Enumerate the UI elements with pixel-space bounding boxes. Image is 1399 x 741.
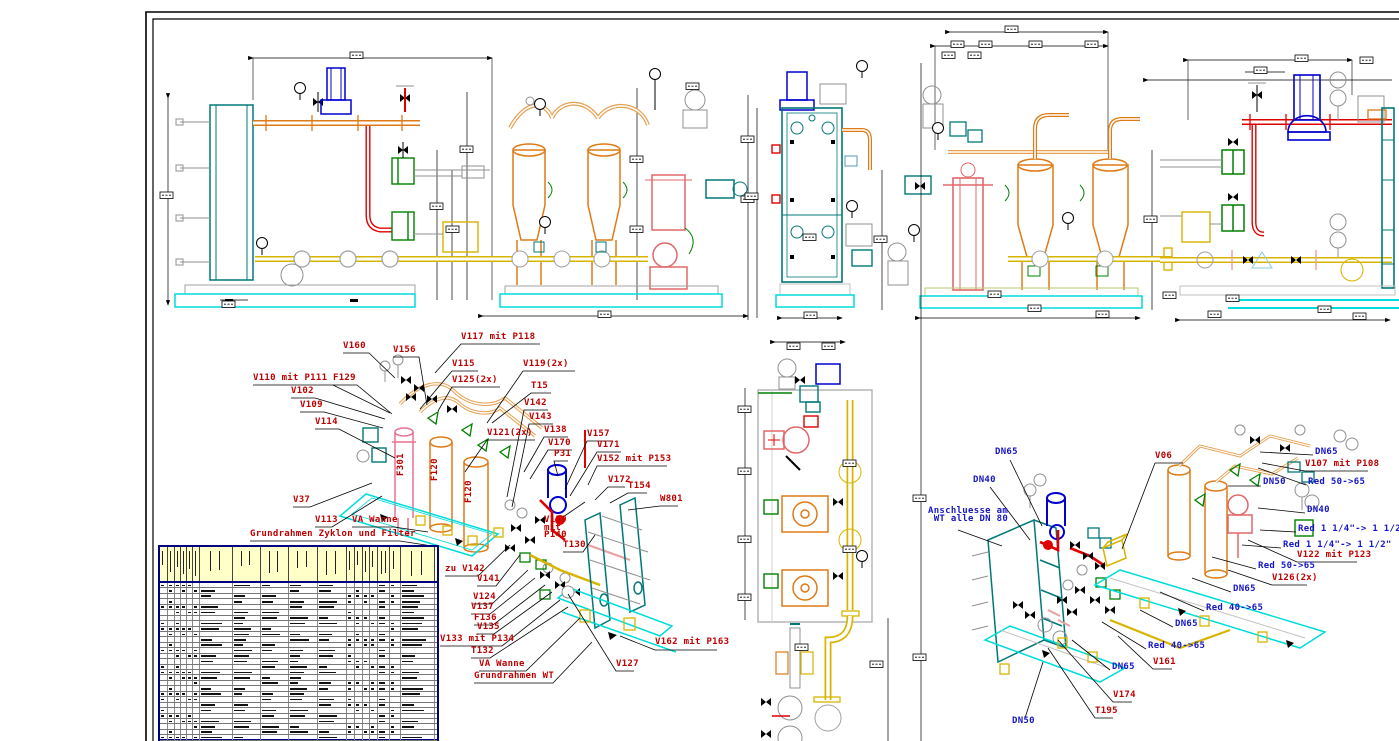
- table-cell: [289, 703, 318, 707]
- table-cell: [370, 643, 378, 647]
- table-cell: [347, 583, 355, 587]
- table-cell: [378, 637, 390, 641]
- table-cell: [390, 616, 401, 620]
- table-cell: [401, 610, 435, 614]
- table-cell: [261, 632, 289, 636]
- table-cell: [233, 599, 261, 603]
- table-cell: [355, 714, 363, 718]
- table-cell: [347, 665, 355, 669]
- table-cell: [200, 697, 233, 701]
- table-cell: [160, 588, 168, 592]
- table-cell: [261, 594, 289, 598]
- table-cell: [160, 670, 168, 674]
- annotation-label: F129: [333, 375, 356, 383]
- table-cell: [261, 605, 289, 609]
- table-cell: [168, 724, 175, 728]
- table-cell: [168, 599, 175, 603]
- table-cell: [233, 686, 261, 690]
- table-cell: [200, 730, 233, 734]
- table-cell: [200, 719, 233, 723]
- table-cell: [378, 681, 390, 685]
- table-cell: [355, 599, 363, 603]
- table-cell: [318, 675, 347, 679]
- table-cell: [370, 735, 378, 739]
- annotation-label: T154: [628, 483, 651, 491]
- table-cell: [378, 599, 390, 603]
- table-cell: [363, 730, 370, 734]
- table-cell: [370, 686, 378, 690]
- table-cell: [318, 665, 347, 669]
- table-cell: [390, 659, 401, 663]
- table-cell: [347, 681, 355, 685]
- table-cell: [289, 594, 318, 598]
- table-cell: [168, 681, 175, 685]
- table-cell: [378, 583, 390, 587]
- table-cell: [200, 703, 233, 707]
- table-cell: [401, 632, 435, 636]
- table-cell: [289, 610, 318, 614]
- table-cell: [193, 599, 200, 603]
- table-cell: [318, 703, 347, 707]
- table-cell: [363, 637, 370, 641]
- table-cell: [168, 637, 175, 641]
- table-cell: [401, 719, 435, 723]
- table-cell: [363, 654, 370, 658]
- annotation-label: V113: [315, 517, 338, 525]
- table-cell: [200, 583, 233, 587]
- table-cell: [401, 665, 435, 669]
- table-cell: [378, 654, 390, 658]
- table-cell: [401, 659, 435, 663]
- annotation-label: V121(2x): [487, 430, 533, 438]
- table-cell: [370, 654, 378, 658]
- table-cell: [193, 714, 200, 718]
- table-cell: [318, 719, 347, 723]
- table-cell: [355, 719, 363, 723]
- leader-line: [1260, 452, 1313, 455]
- table-cell: [355, 692, 363, 696]
- table-cell: [168, 632, 175, 636]
- table-cell: [370, 708, 378, 712]
- table-cell: [289, 588, 318, 592]
- table-cell: [193, 665, 200, 669]
- table-cell: [261, 599, 289, 603]
- table-cell: [401, 616, 435, 620]
- table-cell: [390, 610, 401, 614]
- annotation-label: V170: [548, 440, 571, 448]
- table-cell: [261, 708, 289, 712]
- table-cell: [363, 643, 370, 647]
- table-cell: [370, 637, 378, 641]
- table-cell: [390, 724, 401, 728]
- table-cell: [378, 714, 390, 718]
- table-cell: [200, 621, 233, 625]
- table-cell: [401, 594, 435, 598]
- table-column-header: [168, 547, 175, 581]
- table-cell: [168, 703, 175, 707]
- table-cell: [347, 703, 355, 707]
- table-cell: [160, 632, 168, 636]
- table-cell: [318, 632, 347, 636]
- table-cell: [370, 648, 378, 652]
- table-cell: [318, 648, 347, 652]
- elevation-view-2: [483, 69, 754, 321]
- table-cell: [363, 692, 370, 696]
- table-cell: [363, 681, 370, 685]
- table-cell: [370, 594, 378, 598]
- table-cell: [378, 730, 390, 734]
- table-cell: [390, 637, 401, 641]
- table-cell: [401, 643, 435, 647]
- table-cell: [193, 621, 200, 625]
- table-cell: [193, 686, 200, 690]
- table-cell: [289, 583, 318, 587]
- table-cell: [355, 675, 363, 679]
- annotation-label: V125(2x): [452, 377, 498, 385]
- table-cell: [347, 643, 355, 647]
- table-cell: [168, 670, 175, 674]
- table-cell: [160, 697, 168, 701]
- table-cell: [378, 627, 390, 631]
- table-cell: [401, 697, 435, 701]
- table-cell: [200, 643, 233, 647]
- table-cell: [168, 594, 175, 598]
- table-cell: [355, 616, 363, 620]
- table-cell: [160, 594, 168, 598]
- table-cell: [160, 665, 168, 669]
- table-cell: [261, 697, 289, 701]
- table-cell: [160, 675, 168, 679]
- annotation-label: DN50: [1263, 479, 1286, 487]
- table-cell: [200, 648, 233, 652]
- annotation-label: V126(2x): [1272, 575, 1318, 583]
- parts-list-header: [160, 547, 437, 583]
- table-cell: [168, 648, 175, 652]
- table-cell: [363, 605, 370, 609]
- table-cell: [233, 632, 261, 636]
- table-cell: [347, 627, 355, 631]
- table-cell: [193, 708, 200, 712]
- annotation-label: V142: [524, 400, 547, 408]
- table-cell: [160, 627, 168, 631]
- annotation-label: F120: [432, 458, 440, 481]
- table-cell: [233, 708, 261, 712]
- annotation-label: VA Wanne: [479, 661, 525, 669]
- table-cell: [168, 735, 175, 739]
- table-cell: [363, 697, 370, 701]
- table-cell: [233, 659, 261, 663]
- table-cell: [233, 703, 261, 707]
- table-cell: [370, 616, 378, 620]
- table-cell: [168, 665, 175, 669]
- table-cell: [318, 724, 347, 728]
- leader-line: [1072, 640, 1110, 670]
- table-cell: [390, 648, 401, 652]
- table-cell: [347, 654, 355, 658]
- table-cell: [200, 594, 233, 598]
- table-column-header: [347, 547, 355, 581]
- table-cell: [370, 659, 378, 663]
- table-cell: [378, 703, 390, 707]
- table-cell: [355, 686, 363, 690]
- table-cell: [318, 616, 347, 620]
- table-cell: [168, 621, 175, 625]
- table-cell: [193, 670, 200, 674]
- table-cell: [390, 681, 401, 685]
- table-cell: [160, 637, 168, 641]
- table-cell: [261, 588, 289, 592]
- table-cell: [289, 714, 318, 718]
- table-cell: [347, 588, 355, 592]
- table-cell: [233, 714, 261, 718]
- table-cell: [168, 610, 175, 614]
- annotation-label: zu V142: [445, 566, 485, 574]
- leader-line: [1212, 557, 1256, 569]
- table-cell: [289, 730, 318, 734]
- table-cell: [347, 621, 355, 625]
- table-cell: [193, 681, 200, 685]
- table-cell: [355, 659, 363, 663]
- leader-line: [1260, 530, 1296, 532]
- table-cell: [355, 594, 363, 598]
- table-cell: [363, 659, 370, 663]
- table-cell: [168, 583, 175, 587]
- table-cell: [160, 654, 168, 658]
- parts-list-table: [158, 545, 439, 741]
- table-column-header: [370, 547, 378, 581]
- table-cell: [401, 654, 435, 658]
- table-cell: [355, 670, 363, 674]
- leader-line: [1025, 662, 1043, 718]
- leader-line: [1192, 578, 1231, 592]
- table-cell: [233, 594, 261, 598]
- table-cell: [318, 730, 347, 734]
- table-cell: [289, 665, 318, 669]
- table-cell: [318, 605, 347, 609]
- annotation-label: V174: [1113, 692, 1136, 700]
- table-cell: [318, 692, 347, 696]
- table-cell: [370, 610, 378, 614]
- leader-line: [1010, 460, 1042, 526]
- table-cell: [168, 616, 175, 620]
- annotation-label: V107 mit P108: [1305, 461, 1379, 469]
- annotation-label: T130: [563, 542, 586, 550]
- annotation-label: W801: [660, 496, 683, 504]
- table-cell: [363, 714, 370, 718]
- annotation-label: V117 mit P118: [461, 334, 535, 342]
- annotation-label: V102: [291, 388, 314, 396]
- table-cell: [370, 627, 378, 631]
- table-cell: [378, 675, 390, 679]
- table-cell: [200, 616, 233, 620]
- table-cell: [363, 670, 370, 674]
- table-cell: [233, 588, 261, 592]
- leader-line: [1258, 508, 1305, 513]
- table-cell: [347, 648, 355, 652]
- table-cell: [193, 594, 200, 598]
- table-cell: [261, 616, 289, 620]
- table-cell: [289, 692, 318, 696]
- table-cell: [318, 686, 347, 690]
- table-cell: [370, 670, 378, 674]
- table-cell: [289, 670, 318, 674]
- table-cell: [168, 588, 175, 592]
- table-cell: [355, 730, 363, 734]
- table-cell: [289, 708, 318, 712]
- table-cell: [370, 730, 378, 734]
- table-cell: [233, 637, 261, 641]
- table-column-header: [318, 547, 347, 581]
- leader-line: [958, 530, 1002, 546]
- table-cell: [347, 670, 355, 674]
- table-cell: [390, 605, 401, 609]
- table-cell: [401, 621, 435, 625]
- elevation-view-1: [160, 52, 497, 308]
- table-cell: [355, 665, 363, 669]
- table-cell: [390, 643, 401, 647]
- table-cell: [378, 605, 390, 609]
- table-cell: [355, 708, 363, 712]
- table-cell: [233, 675, 261, 679]
- table-cell: [401, 692, 435, 696]
- annotation-label: Red 50->65: [1258, 563, 1315, 571]
- table-cell: [318, 599, 347, 603]
- table-cell: [355, 588, 363, 592]
- table-cell: [363, 719, 370, 723]
- leader-line: [1122, 463, 1183, 549]
- table-cell: [289, 643, 318, 647]
- annotation-label: V37: [293, 497, 310, 505]
- table-cell: [233, 627, 261, 631]
- leader-line: [1242, 545, 1281, 548]
- table-cell: [347, 632, 355, 636]
- annotation-label: Red 1 1/4"-> 1 1/2": [1283, 542, 1392, 550]
- table-cell: [378, 659, 390, 663]
- table-cell: [378, 692, 390, 696]
- table-cell: [363, 588, 370, 592]
- table-cell: [289, 605, 318, 609]
- annotation-label: V122 mit P123: [1297, 552, 1371, 560]
- table-cell: [168, 675, 175, 679]
- table-cell: [363, 724, 370, 728]
- table-cell: [355, 681, 363, 685]
- annotation-label: V124: [473, 594, 496, 602]
- annotation-label: Red 40->65: [1206, 605, 1263, 613]
- table-cell: [401, 648, 435, 652]
- table-cell: [363, 632, 370, 636]
- table-cell: [390, 583, 401, 587]
- table-cell: [355, 648, 363, 652]
- table-cell: [318, 643, 347, 647]
- table-cell: [200, 714, 233, 718]
- parts-list-rows: [160, 583, 437, 741]
- table-cell: [289, 724, 318, 728]
- table-cell: [318, 583, 347, 587]
- table-cell: [200, 724, 233, 728]
- annotation-label: F120: [466, 480, 474, 503]
- table-cell: [233, 605, 261, 609]
- table-cell: [289, 659, 318, 663]
- table-cell: [193, 692, 200, 696]
- annotation-label: V139 mit P140: [544, 517, 567, 540]
- table-cell: [355, 627, 363, 631]
- table-cell: [401, 730, 435, 734]
- annotation-label: V133 mit P134: [440, 636, 514, 644]
- table-cell: [370, 599, 378, 603]
- table-cell: [378, 686, 390, 690]
- table-cell: [370, 605, 378, 609]
- table-cell: [401, 714, 435, 718]
- table-cell: [168, 714, 175, 718]
- table-cell: [261, 735, 289, 739]
- table-cell: [261, 703, 289, 707]
- table-cell: [200, 681, 233, 685]
- table-column-header: [160, 547, 168, 581]
- table-cell: [355, 610, 363, 614]
- table-cell: [168, 708, 175, 712]
- table-cell: [347, 724, 355, 728]
- table-cell: [289, 697, 318, 701]
- annotation-label: V06: [1155, 453, 1172, 461]
- table-cell: [193, 735, 200, 739]
- table-cell: [233, 735, 261, 739]
- table-cell: [160, 643, 168, 647]
- annotation-label: DN50: [1012, 718, 1035, 726]
- table-cell: [390, 632, 401, 636]
- annotation-label: Grundrahmen WT: [474, 673, 554, 681]
- table-cell: [200, 610, 233, 614]
- table-cell: [160, 616, 168, 620]
- table-cell: [363, 708, 370, 712]
- table-cell: [378, 735, 390, 739]
- plan-view: [738, 63, 926, 741]
- annotation-label: V137: [471, 604, 494, 612]
- table-cell: [261, 637, 289, 641]
- annotation-label: V115: [452, 361, 475, 369]
- annotation-label: V114: [315, 419, 338, 427]
- table-cell: [347, 686, 355, 690]
- table-cell: [233, 697, 261, 701]
- table-cell: [370, 719, 378, 723]
- table-cell: [390, 665, 401, 669]
- table-cell: [378, 648, 390, 652]
- table-cell: [401, 588, 435, 592]
- table-cell: [193, 697, 200, 701]
- table-cell: [261, 714, 289, 718]
- table-cell: [318, 659, 347, 663]
- annotation-label: Red 50->65: [1308, 479, 1365, 487]
- table-cell: [193, 627, 200, 631]
- table-cell: [318, 637, 347, 641]
- table-column-header: [378, 547, 390, 581]
- table-cell: [200, 627, 233, 631]
- table-cell: [363, 610, 370, 614]
- table-cell: [390, 697, 401, 701]
- annotation-label: Anschluesse am WT alle DN 80: [928, 508, 1008, 523]
- table-cell: [168, 605, 175, 609]
- table-cell: [355, 735, 363, 739]
- table-cell: [193, 719, 200, 723]
- table-cell: [378, 708, 390, 712]
- table-cell: [363, 648, 370, 652]
- table-cell: [193, 610, 200, 614]
- annotation-label: DN65: [1233, 586, 1256, 594]
- annotation-label: DN65: [1112, 664, 1135, 672]
- table-cell: [370, 621, 378, 625]
- table-cell: [401, 675, 435, 679]
- table-cell: [318, 697, 347, 701]
- table-cell: [390, 627, 401, 631]
